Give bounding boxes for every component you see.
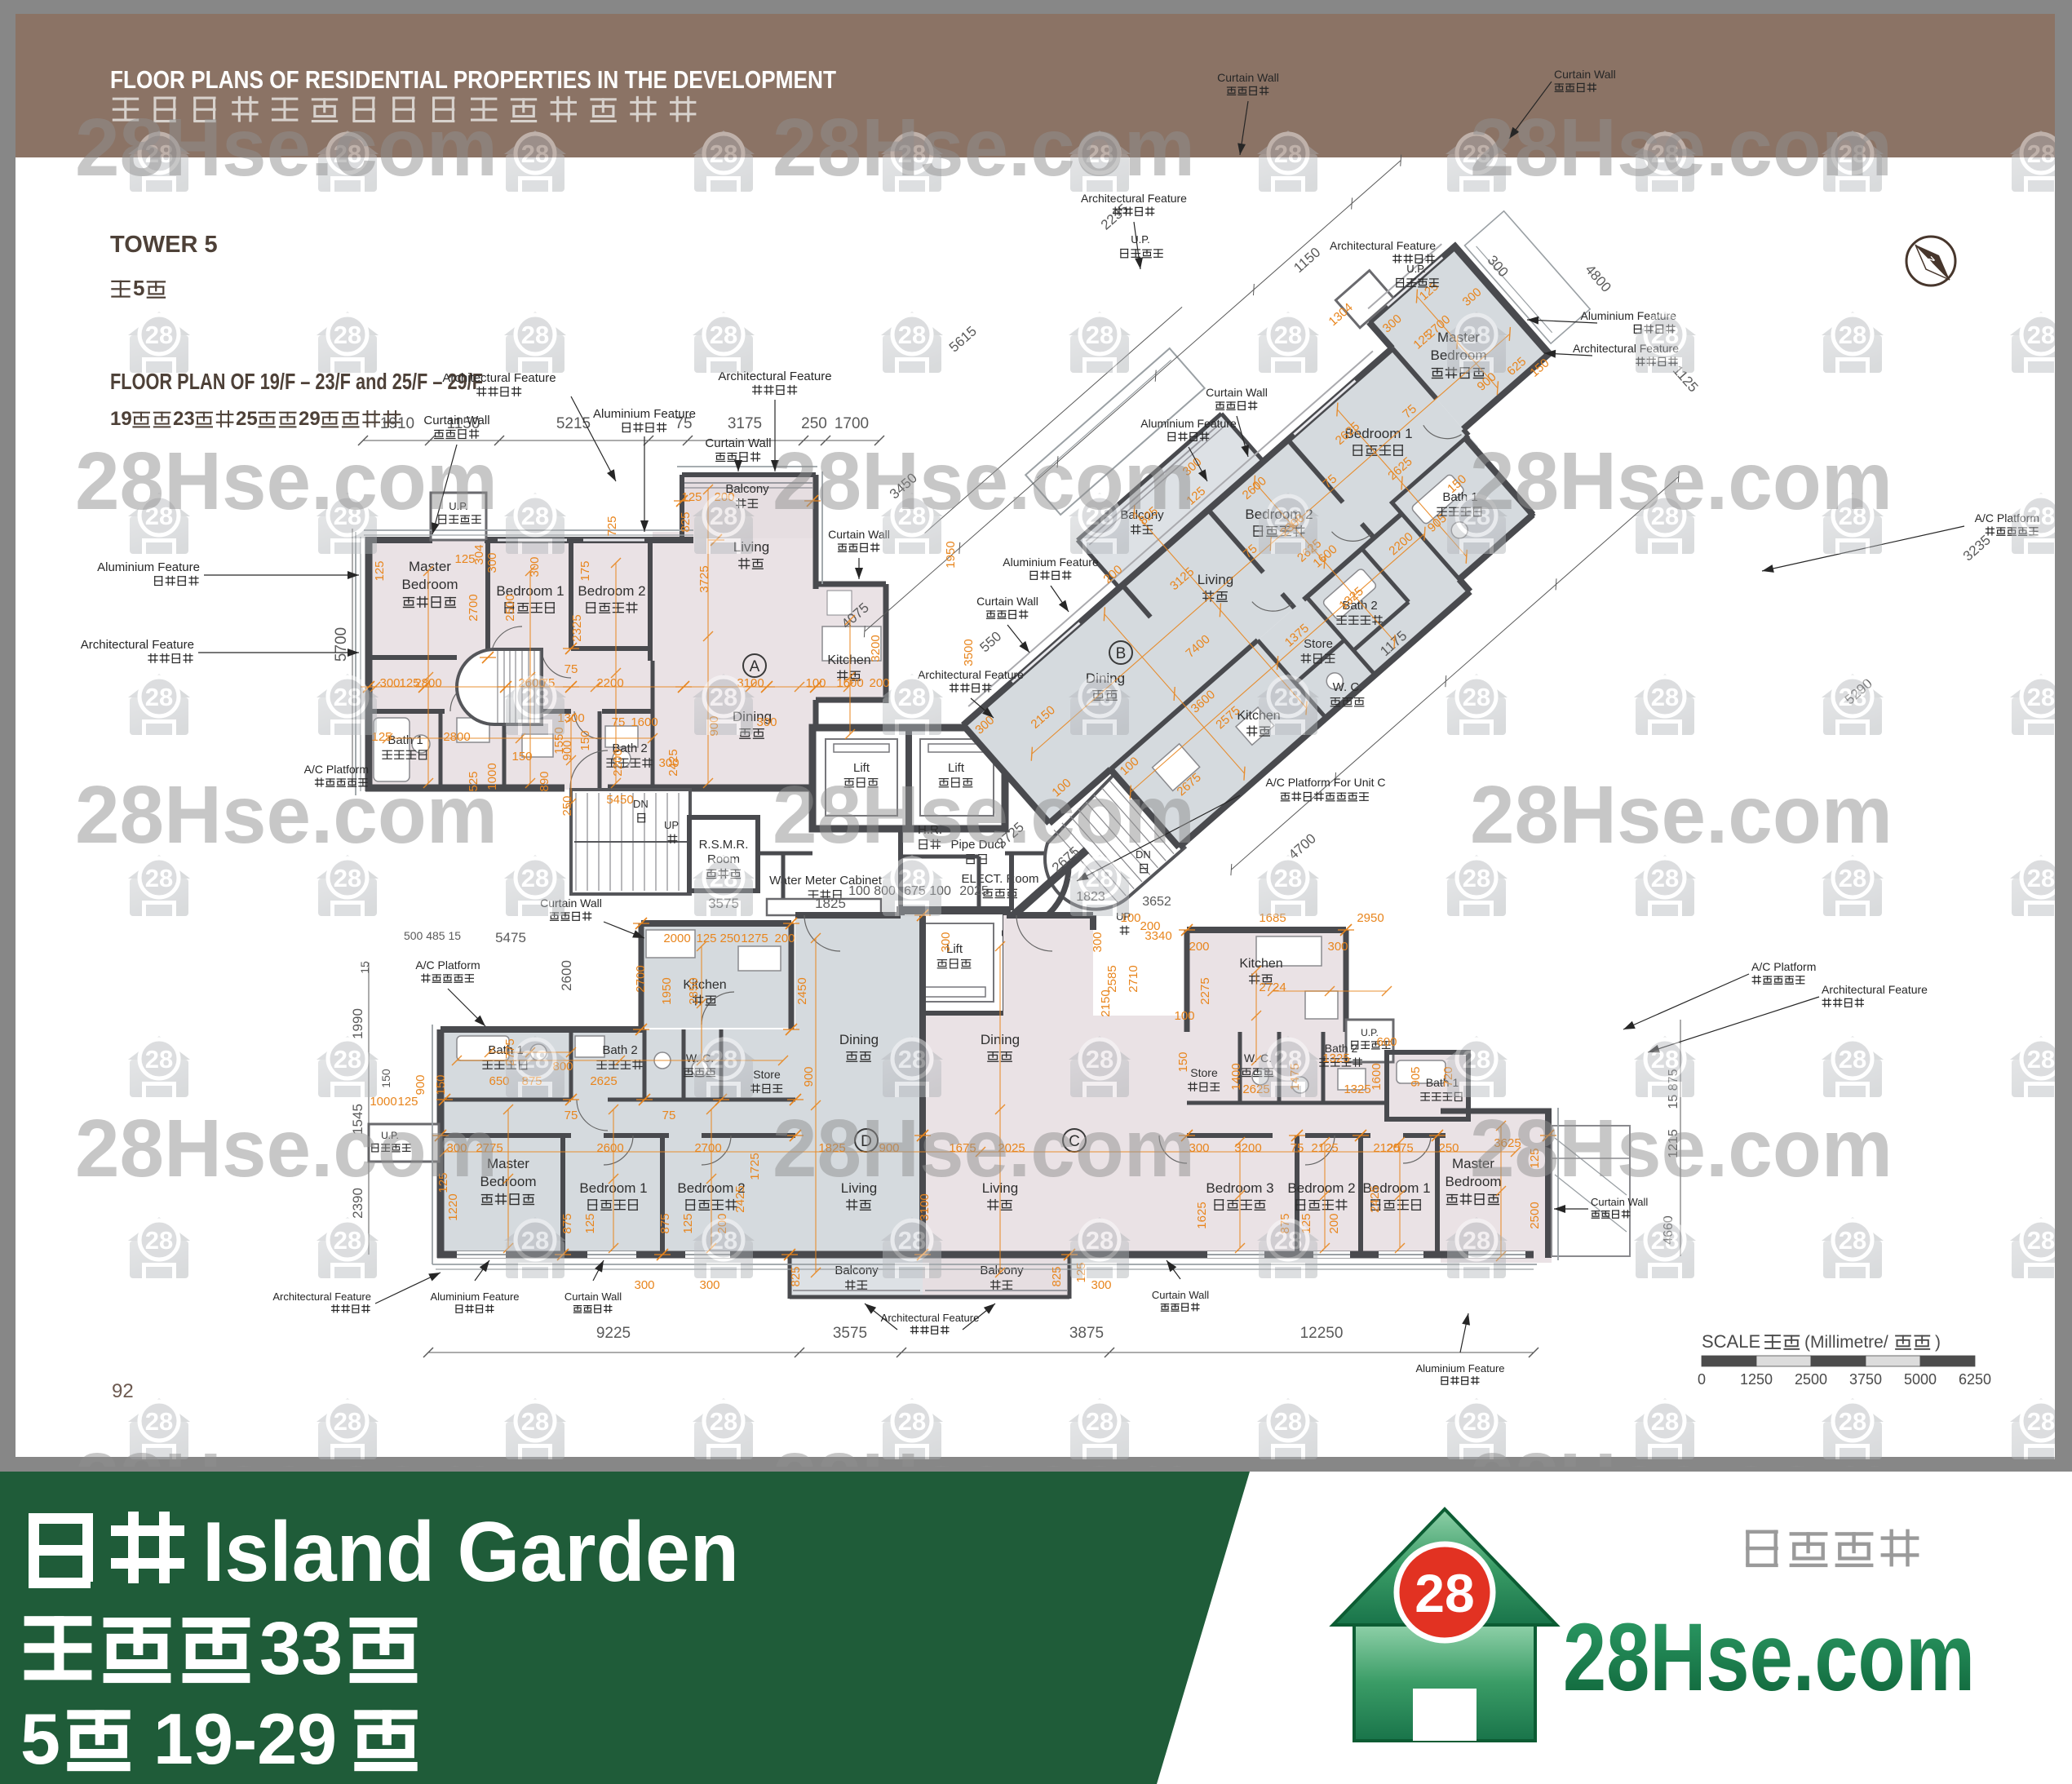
svg-text:Curtain Wall: Curtain Wall [564,1290,622,1303]
svg-text:1600: 1600 [1370,1063,1384,1090]
svg-text:28Hse.com: 28Hse.com [1470,1103,1893,1194]
svg-text:Architectural Feature: Architectural Feature [918,668,1024,681]
svg-text:(Millimetre/: (Millimetre/ [1804,1333,1888,1352]
svg-text:150: 150 [434,1074,448,1095]
svg-text:5450: 5450 [606,793,633,807]
svg-text:Aluminium Feature: Aluminium Feature [593,407,696,421]
svg-text:3875: 3875 [1069,1325,1104,1342]
svg-text:W. C.: W. C. [1333,680,1363,694]
svg-text:200: 200 [869,676,889,690]
svg-text:890: 890 [538,771,551,791]
svg-text:2700: 2700 [634,965,648,992]
svg-text:300: 300 [939,932,953,952]
svg-text:300: 300 [756,715,777,729]
svg-text:75: 75 [1291,1141,1304,1155]
svg-text:2625: 2625 [590,1074,617,1088]
svg-text:2125: 2125 [1373,1141,1400,1155]
svg-text:1275: 1275 [741,932,768,945]
svg-text:300: 300 [658,756,679,770]
svg-text:A: A [750,658,760,675]
svg-text:125: 125 [454,552,475,566]
svg-text:125: 125 [681,490,702,504]
svg-text:250: 250 [1438,1141,1459,1155]
svg-text:A/C Platform For Unit C: A/C Platform For Unit C [1265,776,1385,789]
svg-text:DN: DN [633,798,649,810]
svg-text:UP: UP [664,819,679,831]
svg-text:300: 300 [1091,1278,1111,1292]
svg-text:Curtain Wall: Curtain Wall [1591,1196,1648,1208]
svg-text:2425: 2425 [733,1185,747,1212]
svg-text:2500: 2500 [1528,1202,1542,1228]
svg-text:100: 100 [805,676,826,690]
svg-text:250: 250 [719,932,740,945]
svg-text:SCALE: SCALE [1702,1331,1760,1352]
svg-text:2275: 2275 [1198,977,1212,1004]
svg-text:150: 150 [379,1069,392,1088]
svg-text:125: 125 [696,932,716,945]
svg-text:2500: 2500 [1795,1371,1827,1388]
svg-text:2800: 2800 [443,730,470,744]
svg-text:300: 300 [379,676,400,690]
svg-text:15: 15 [358,961,371,974]
svg-text:Architectural Feature: Architectural Feature [1330,239,1436,252]
svg-text:3340: 3340 [1144,929,1171,943]
svg-text:2850: 2850 [687,977,701,1004]
svg-text:900: 900 [802,1066,816,1087]
svg-text:Bath 2: Bath 2 [602,1043,637,1057]
svg-text:1990: 1990 [350,1008,365,1039]
svg-text:2600: 2600 [596,1141,623,1155]
svg-text:Store: Store [1304,637,1333,651]
svg-text:875: 875 [658,1213,672,1233]
svg-text:300: 300 [1091,932,1105,952]
svg-text:0: 0 [1698,1371,1706,1388]
svg-text:1725: 1725 [748,1153,762,1180]
svg-text:100: 100 [1174,1009,1194,1023]
svg-text:250: 250 [560,795,574,816]
svg-text:2700: 2700 [694,1141,721,1155]
svg-text:1950: 1950 [944,541,958,568]
svg-text:6250: 6250 [1959,1371,1991,1388]
svg-text:R.S.M.R.: R.S.M.R. [699,838,749,852]
svg-text:23: 23 [173,408,195,430]
svg-text:U.P.: U.P. [1406,263,1426,275]
svg-text:28Hse.com: 28Hse.com [75,102,498,193]
svg-text:Balcony: Balcony [835,1264,879,1277]
svg-text:12250: 12250 [1300,1325,1344,1342]
svg-text:1325: 1325 [1344,1082,1370,1096]
svg-text:Master: Master [409,559,451,574]
svg-text:125: 125 [399,676,419,690]
svg-text:825: 825 [1050,1266,1064,1286]
svg-text:Curtain Wall: Curtain Wall [1206,386,1268,399]
svg-text:Curtain Wall: Curtain Wall [1152,1289,1209,1301]
svg-text:2325: 2325 [570,614,584,641]
svg-text:5475: 5475 [495,930,526,945]
svg-text:Bedroom 2: Bedroom 2 [578,583,645,599]
svg-text:125: 125 [681,1213,695,1233]
svg-text:2450: 2450 [795,977,809,1004]
svg-text:2710: 2710 [1127,965,1140,992]
svg-text:A/C Platform: A/C Platform [1751,960,1816,973]
svg-text:Store: Store [753,1068,781,1081]
svg-text:3725: 3725 [697,565,711,592]
svg-text:25: 25 [236,408,258,430]
svg-text:1400: 1400 [1229,1063,1243,1090]
svg-text:150: 150 [1176,1051,1190,1072]
svg-text:75: 75 [612,715,626,729]
svg-text:19-29: 19-29 [153,1698,337,1779]
svg-text:2724: 2724 [1259,981,1286,994]
svg-text:900: 900 [414,1074,427,1095]
svg-text:825: 825 [679,511,693,532]
svg-text:1250: 1250 [1740,1371,1773,1388]
svg-text:1625: 1625 [1195,1202,1209,1228]
svg-text:2500: 2500 [503,594,517,621]
svg-text:150: 150 [578,730,592,750]
svg-text:Architectural Feature: Architectural Feature [81,638,194,652]
svg-text:5000: 5000 [1904,1371,1937,1388]
svg-text:125: 125 [583,1213,597,1233]
svg-text:28: 28 [1415,1563,1474,1623]
svg-text:A/C Platform: A/C Platform [415,958,480,972]
svg-text:B: B [1116,645,1127,662]
svg-text:28Hse.com: 28Hse.com [75,1103,498,1194]
svg-text:2950: 2950 [1357,911,1384,925]
svg-text:875: 875 [560,1213,574,1233]
svg-text:2200: 2200 [611,749,625,776]
svg-text:Kitchen: Kitchen [827,653,870,667]
svg-text:Aluminium Feature: Aluminium Feature [1003,556,1099,569]
svg-text:1600: 1600 [631,715,657,729]
svg-text:Architectural Feature: Architectural Feature [1081,192,1187,205]
svg-text:3652: 3652 [1142,895,1171,909]
svg-text:Curtain Wall: Curtain Wall [976,595,1038,608]
svg-text:300: 300 [1327,940,1348,954]
svg-text:2425: 2425 [1368,1185,1382,1212]
svg-text:250: 250 [801,415,827,432]
svg-text:Architectural Feature: Architectural Feature [881,1312,980,1324]
svg-text:Living: Living [1198,572,1233,587]
svg-text:28Hse.com: 28Hse.com [1563,1604,1975,1711]
svg-text:5700: 5700 [333,627,350,662]
svg-text:500 485 15: 500 485 15 [404,929,461,942]
svg-text:1825: 1825 [815,896,846,911]
svg-text:1910: 1910 [380,415,414,432]
svg-text:300: 300 [634,1278,654,1292]
svg-text:9225: 9225 [596,1325,631,1342]
svg-text:905: 905 [1409,1066,1423,1087]
svg-text:Bedroom 2: Bedroom 2 [1287,1180,1355,1196]
svg-text:75: 75 [662,1109,676,1122]
svg-text:28Hse.com: 28Hse.com [1470,769,1893,861]
svg-text:125: 125 [373,560,387,581]
svg-text:28Hse.com: 28Hse.com [75,769,498,861]
svg-text:3100: 3100 [918,1193,932,1220]
svg-text:2585: 2585 [1105,965,1119,992]
svg-text:Dining: Dining [839,1032,879,1047]
svg-text:Island Garden: Island Garden [202,1505,739,1600]
svg-text:29: 29 [299,408,321,430]
svg-text:): ) [1935,1333,1941,1352]
svg-text:19: 19 [110,408,132,430]
svg-text:200: 200 [1189,940,1209,954]
svg-text:75: 75 [564,662,578,676]
svg-text:1950: 1950 [660,977,674,1004]
svg-text:Aluminium Feature: Aluminium Feature [1415,1362,1504,1375]
svg-text:Aluminium Feature: Aluminium Feature [97,560,200,574]
svg-text:150: 150 [511,750,532,764]
svg-text:300: 300 [485,552,499,573]
svg-text:2000: 2000 [663,932,690,945]
svg-text:900: 900 [560,740,574,760]
svg-text:Curtain Wall: Curtain Wall [423,414,489,427]
svg-text:2700: 2700 [467,594,480,621]
svg-text:Aluminium Feature: Aluminium Feature [430,1290,519,1303]
svg-text:Bedroom: Bedroom [402,577,458,592]
svg-text:1700: 1700 [835,415,869,432]
svg-text:3175: 3175 [728,415,762,432]
svg-text:Kitchen: Kitchen [1239,957,1282,971]
svg-text:Bath 1: Bath 1 [387,733,423,747]
svg-text:175: 175 [578,560,592,581]
svg-text:Architectural Feature: Architectural Feature [272,1290,371,1303]
svg-text:Curtain Wall: Curtain Wall [828,528,890,541]
svg-text:3750: 3750 [1849,1371,1882,1388]
svg-text:28Hse.com: 28Hse.com [1470,436,1893,527]
svg-text:Curtain Wall: Curtain Wall [1217,71,1279,84]
svg-text:3200: 3200 [869,635,883,662]
svg-text:2200: 2200 [596,676,623,690]
svg-text:28Hse.com: 28Hse.com [1470,102,1893,193]
svg-text:200: 200 [774,932,795,945]
svg-text:92: 92 [112,1380,134,1402]
svg-text:Architectural Feature: Architectural Feature [442,371,556,385]
svg-text:3500: 3500 [962,639,976,666]
svg-text:725: 725 [605,516,619,536]
svg-text:Aluminium Feature: Aluminium Feature [1140,417,1237,430]
svg-text:FLOOR PLANS OF RESIDENTIAL PRO: FLOOR PLANS OF RESIDENTIAL PROPERTIES IN… [110,65,836,94]
svg-text:33: 33 [259,1607,343,1690]
svg-text:300: 300 [699,1278,719,1292]
svg-text:28Hse.com: 28Hse.com [773,436,1195,527]
svg-text:2025: 2025 [959,884,989,898]
svg-text:Architectural Feature: Architectural Feature [1822,983,1928,996]
svg-text:2150: 2150 [1099,989,1113,1016]
svg-text:5: 5 [133,276,144,300]
svg-text:Curtain Wall: Curtain Wall [1554,68,1616,81]
svg-text:28Hse.com: 28Hse.com [773,102,1195,193]
svg-text:28Hse.com: 28Hse.com [773,769,1195,861]
svg-text:5: 5 [20,1698,60,1779]
svg-text:28Hse.com: 28Hse.com [75,436,498,527]
svg-text:3575: 3575 [833,1325,867,1342]
svg-text:Store: Store [1190,1066,1218,1079]
svg-text:825: 825 [789,1266,803,1286]
svg-text:600: 600 [1376,1035,1397,1049]
svg-text:TOWER 5: TOWER 5 [110,232,218,258]
svg-text:28Hse.com: 28Hse.com [773,1103,1195,1194]
svg-text:Curtain Wall: Curtain Wall [705,436,771,450]
svg-text:1325: 1325 [1322,1051,1349,1065]
svg-text:2600: 2600 [559,960,574,991]
svg-text:U.P.: U.P. [1131,233,1150,246]
svg-text:1220: 1220 [446,1193,460,1220]
svg-text:200: 200 [1327,1213,1341,1233]
svg-text:75: 75 [564,1109,578,1122]
